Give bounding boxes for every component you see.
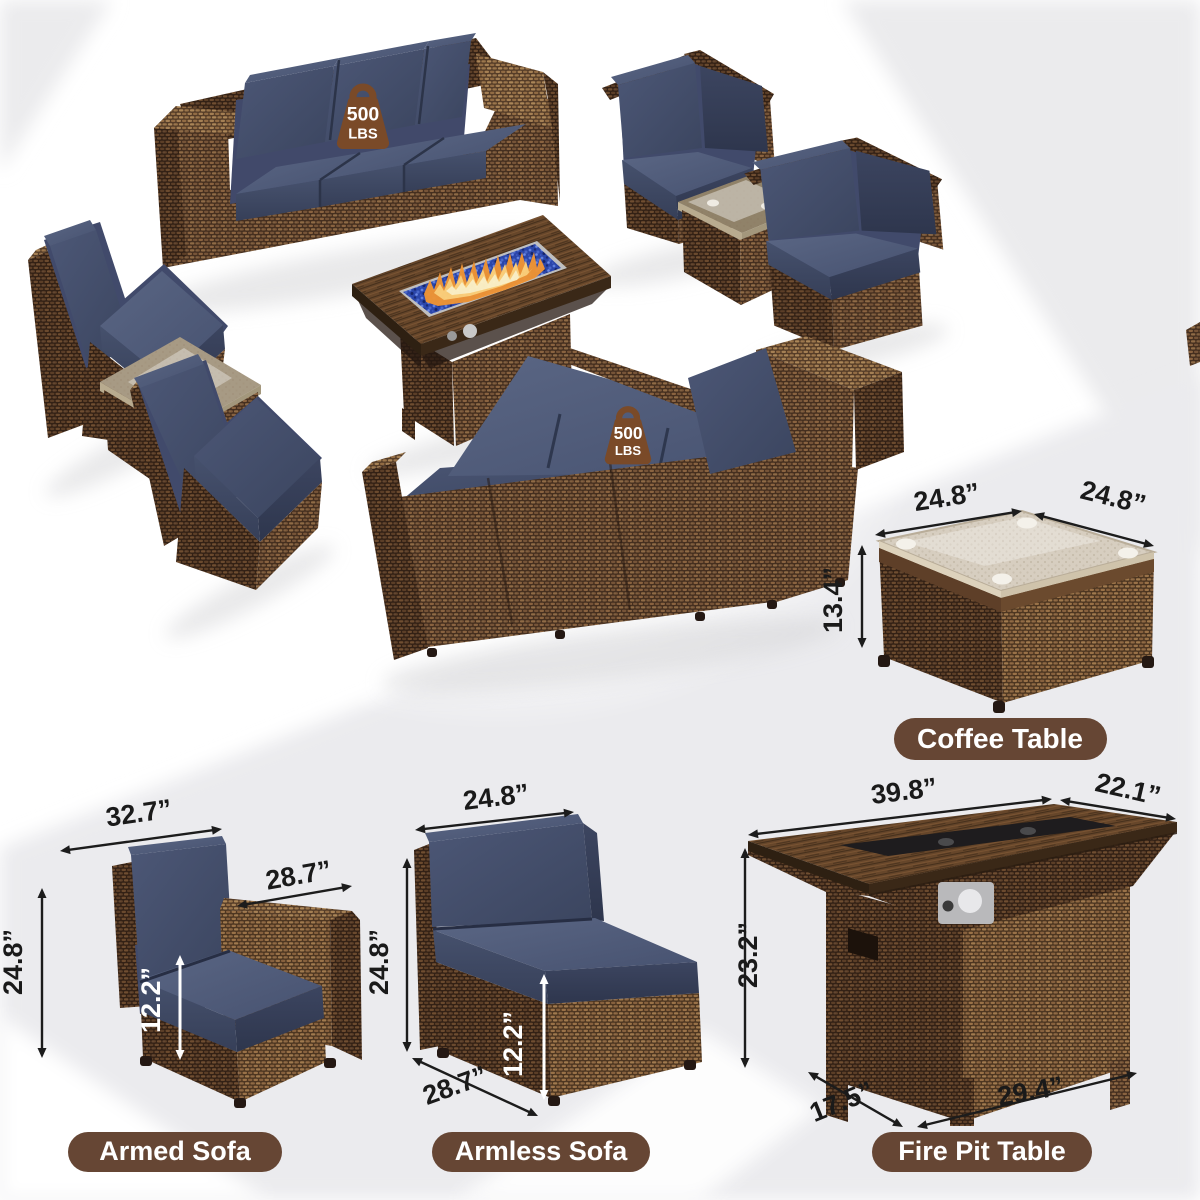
svg-text:LBS: LBS (615, 443, 641, 458)
svg-text:12.2”: 12.2” (136, 967, 166, 1033)
svg-text:24.8”: 24.8” (0, 929, 28, 995)
svg-text:500: 500 (614, 423, 643, 443)
svg-text:Coffee Table: Coffee Table (917, 723, 1083, 754)
svg-text:24.8”: 24.8” (364, 929, 394, 995)
svg-text:Armed Sofa: Armed Sofa (99, 1136, 252, 1166)
svg-text:23.2”: 23.2” (733, 922, 763, 988)
svg-text:500: 500 (347, 104, 380, 126)
svg-text:12.2”: 12.2” (498, 1011, 528, 1077)
svg-text:Fire Pit Table: Fire Pit Table (898, 1136, 1066, 1166)
svg-text:LBS: LBS (348, 126, 378, 142)
svg-text:Armless Sofa: Armless Sofa (455, 1136, 629, 1166)
svg-text:13.4”: 13.4” (818, 567, 848, 633)
